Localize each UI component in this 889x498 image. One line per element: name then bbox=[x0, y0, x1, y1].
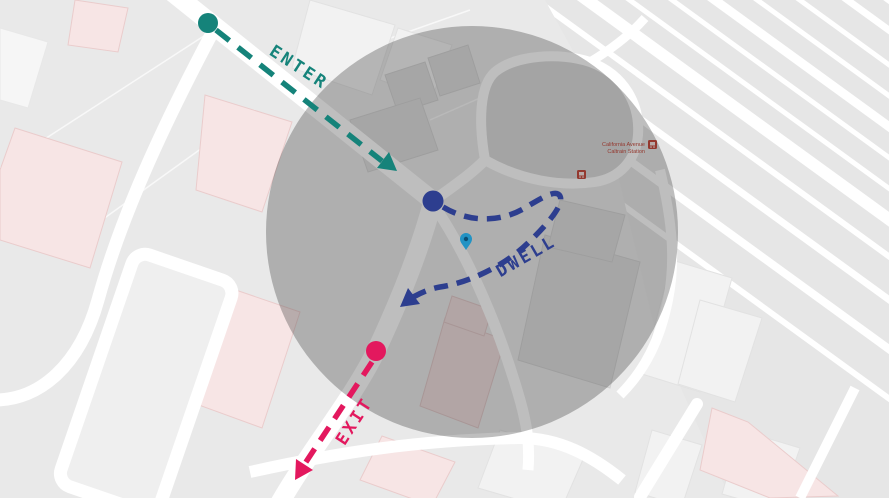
map-canvas[interactable]: California Avenue Caltrain Station ENTER bbox=[0, 0, 889, 498]
exit-start-dot bbox=[366, 341, 386, 361]
geofence-map-figure: California Avenue Caltrain Station ENTER bbox=[0, 0, 889, 498]
dwell-start-dot bbox=[423, 191, 444, 212]
enter-start-dot bbox=[198, 13, 218, 33]
geofence-circle bbox=[266, 26, 678, 438]
